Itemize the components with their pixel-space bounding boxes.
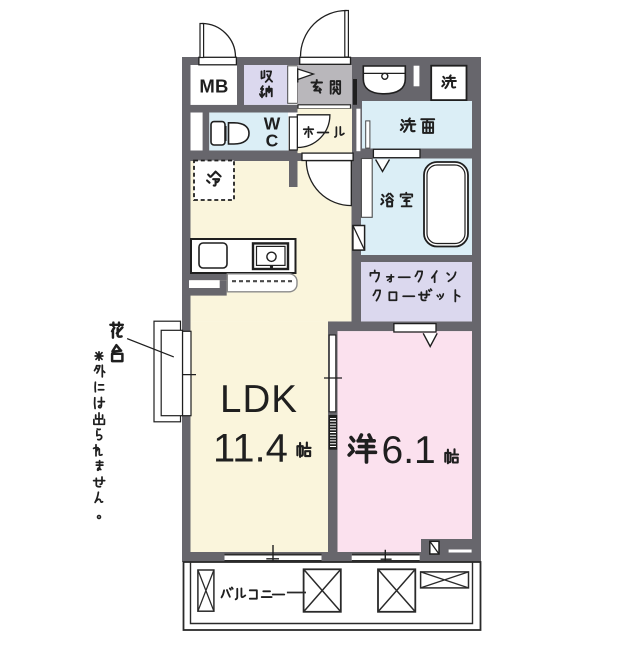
svg-text:LDK: LDK: [220, 378, 298, 421]
svg-text:MB: MB: [199, 76, 228, 97]
svg-text:6.1: 6.1: [382, 429, 436, 472]
svg-text:C: C: [266, 131, 279, 151]
svg-text:11.4: 11.4: [213, 427, 288, 471]
